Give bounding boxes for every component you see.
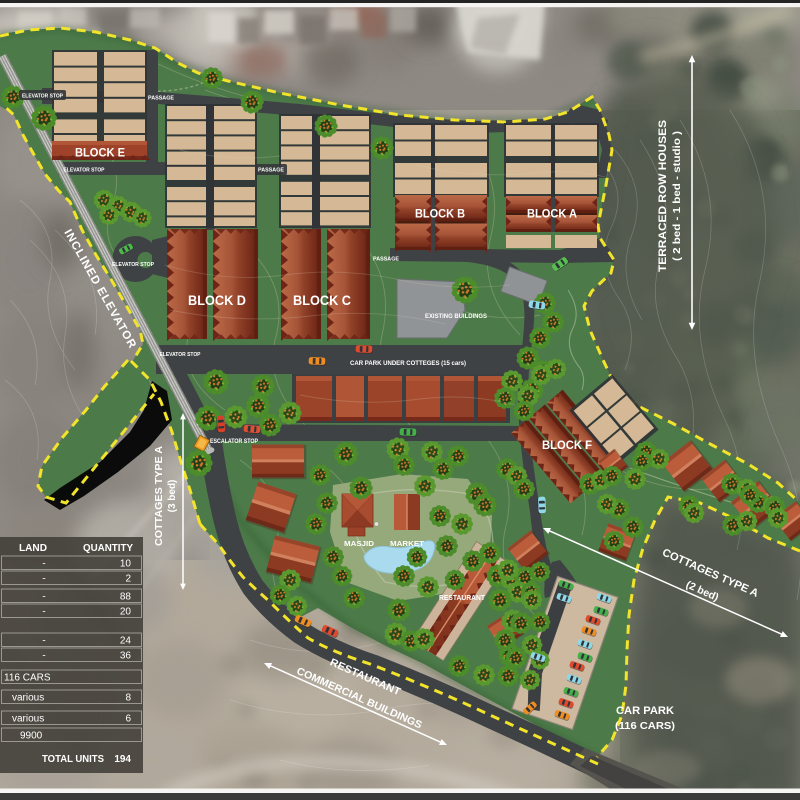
svg-text:CAR PARK UNDER COTTEGES (15 ca: CAR PARK UNDER COTTEGES (15 cars): [350, 360, 466, 367]
svg-text:CAR PARK: CAR PARK: [616, 705, 674, 717]
svg-text:36: 36: [120, 651, 132, 662]
svg-text:MASJID: MASJID: [344, 541, 374, 548]
svg-text:(116 CARS): (116 CARS): [615, 720, 675, 732]
svg-text:6: 6: [125, 714, 131, 725]
svg-text:EXISTING BUILDINGS: EXISTING BUILDINGS: [425, 313, 487, 320]
svg-text:TERRACED ROW HOUSES: TERRACED ROW HOUSES: [657, 120, 669, 272]
svg-text:PASSAGE: PASSAGE: [373, 257, 399, 263]
svg-text:BLOCK E: BLOCK E: [75, 146, 125, 160]
svg-text:various: various: [12, 714, 44, 725]
svg-text:194: 194: [114, 754, 131, 765]
svg-text:116 CARS: 116 CARS: [4, 673, 51, 684]
svg-text:10: 10: [120, 559, 132, 570]
svg-text:ELEVATOR STOP: ELEVATOR STOP: [112, 262, 154, 268]
svg-text:RESTAURANT: RESTAURANT: [439, 593, 486, 602]
svg-text:ELEVATOR STOP: ELEVATOR STOP: [64, 168, 105, 174]
svg-text:BLOCK F: BLOCK F: [542, 438, 592, 452]
svg-text:COTTAGES TYPE A: COTTAGES TYPE A: [153, 446, 165, 546]
svg-text:24: 24: [120, 636, 132, 647]
svg-text:MARKET: MARKET: [390, 541, 425, 548]
svg-text:BLOCK A: BLOCK A: [527, 207, 577, 221]
svg-text:ELEVATOR STOP: ELEVATOR STOP: [160, 352, 201, 358]
svg-text:various: various: [12, 693, 44, 704]
svg-text:-: -: [42, 559, 45, 570]
svg-text:(3 bed): (3 bed): [167, 480, 178, 513]
svg-text:ELEVATOR STOP: ELEVATOR STOP: [22, 94, 63, 100]
svg-text:( 2 bed - 1 bed - studio ): ( 2 bed - 1 bed - studio ): [672, 131, 683, 261]
svg-text:ESCALATOR STOP: ESCALATOR STOP: [210, 438, 258, 445]
svg-text:BLOCK C: BLOCK C: [293, 293, 351, 308]
svg-text:-: -: [42, 574, 45, 585]
svg-text:-: -: [42, 636, 45, 647]
svg-text:-: -: [42, 651, 45, 662]
svg-text:-: -: [42, 592, 45, 603]
svg-text:QUANTITY: QUANTITY: [83, 543, 133, 554]
svg-text:BLOCK B: BLOCK B: [415, 207, 465, 221]
svg-text:TOTAL UNITS: TOTAL UNITS: [42, 754, 104, 765]
svg-text:8: 8: [125, 693, 131, 704]
svg-text:-: -: [42, 607, 45, 618]
svg-text:PASSAGE: PASSAGE: [148, 96, 174, 102]
svg-text:20: 20: [120, 607, 132, 618]
svg-text:2: 2: [125, 574, 131, 585]
svg-text:LAND: LAND: [19, 543, 47, 554]
svg-text:BLOCK D: BLOCK D: [188, 293, 246, 308]
svg-text:PASSAGE: PASSAGE: [258, 168, 284, 174]
svg-text:9900: 9900: [20, 731, 43, 742]
svg-text:88: 88: [120, 592, 132, 603]
